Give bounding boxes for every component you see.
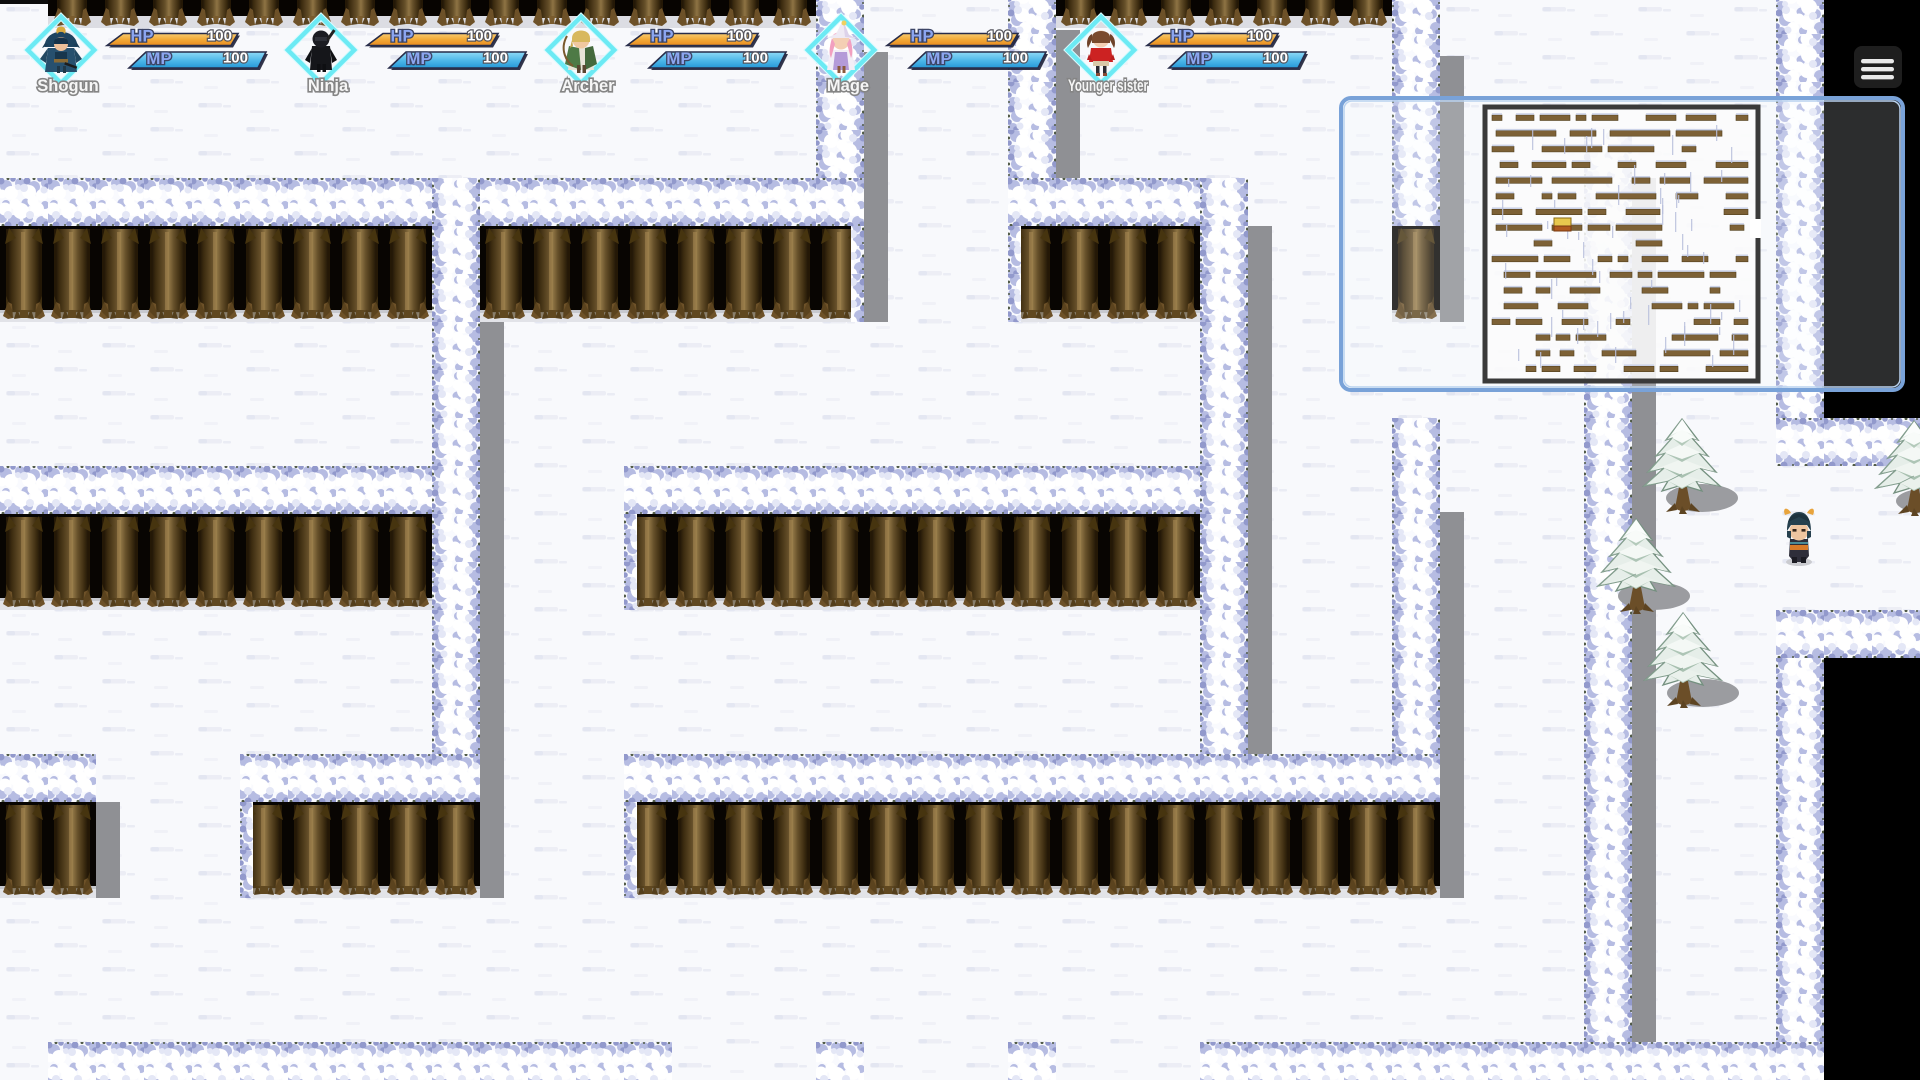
svg-text:100: 100 bbox=[1247, 28, 1272, 45]
svg-text:HP: HP bbox=[651, 28, 674, 46]
svg-text:Archer: Archer bbox=[561, 77, 615, 95]
svg-text:Ninja: Ninja bbox=[308, 77, 349, 95]
svg-text:100: 100 bbox=[1263, 50, 1288, 67]
svg-text:100: 100 bbox=[223, 50, 248, 67]
svg-text:100: 100 bbox=[483, 50, 508, 67]
svg-text:MP: MP bbox=[1186, 49, 1212, 68]
svg-text:Mage: Mage bbox=[827, 77, 869, 95]
svg-text:MP: MP bbox=[666, 49, 692, 68]
svg-text:HP: HP bbox=[911, 28, 934, 46]
svg-text:100: 100 bbox=[987, 28, 1012, 45]
svg-text:100: 100 bbox=[743, 50, 768, 67]
svg-text:100: 100 bbox=[207, 28, 232, 45]
svg-text:Shogun: Shogun bbox=[37, 77, 98, 95]
svg-text:Younger sister: Younger sister bbox=[1068, 77, 1148, 95]
svg-text:HP: HP bbox=[131, 28, 154, 46]
svg-text:MP: MP bbox=[146, 49, 172, 68]
svg-text:MP: MP bbox=[406, 49, 432, 68]
svg-text:100: 100 bbox=[727, 28, 752, 45]
svg-text:HP: HP bbox=[391, 28, 414, 46]
svg-text:HP: HP bbox=[1171, 28, 1194, 46]
svg-text:MP: MP bbox=[926, 49, 952, 68]
svg-text:100: 100 bbox=[1003, 50, 1028, 67]
svg-text:100: 100 bbox=[467, 28, 492, 45]
